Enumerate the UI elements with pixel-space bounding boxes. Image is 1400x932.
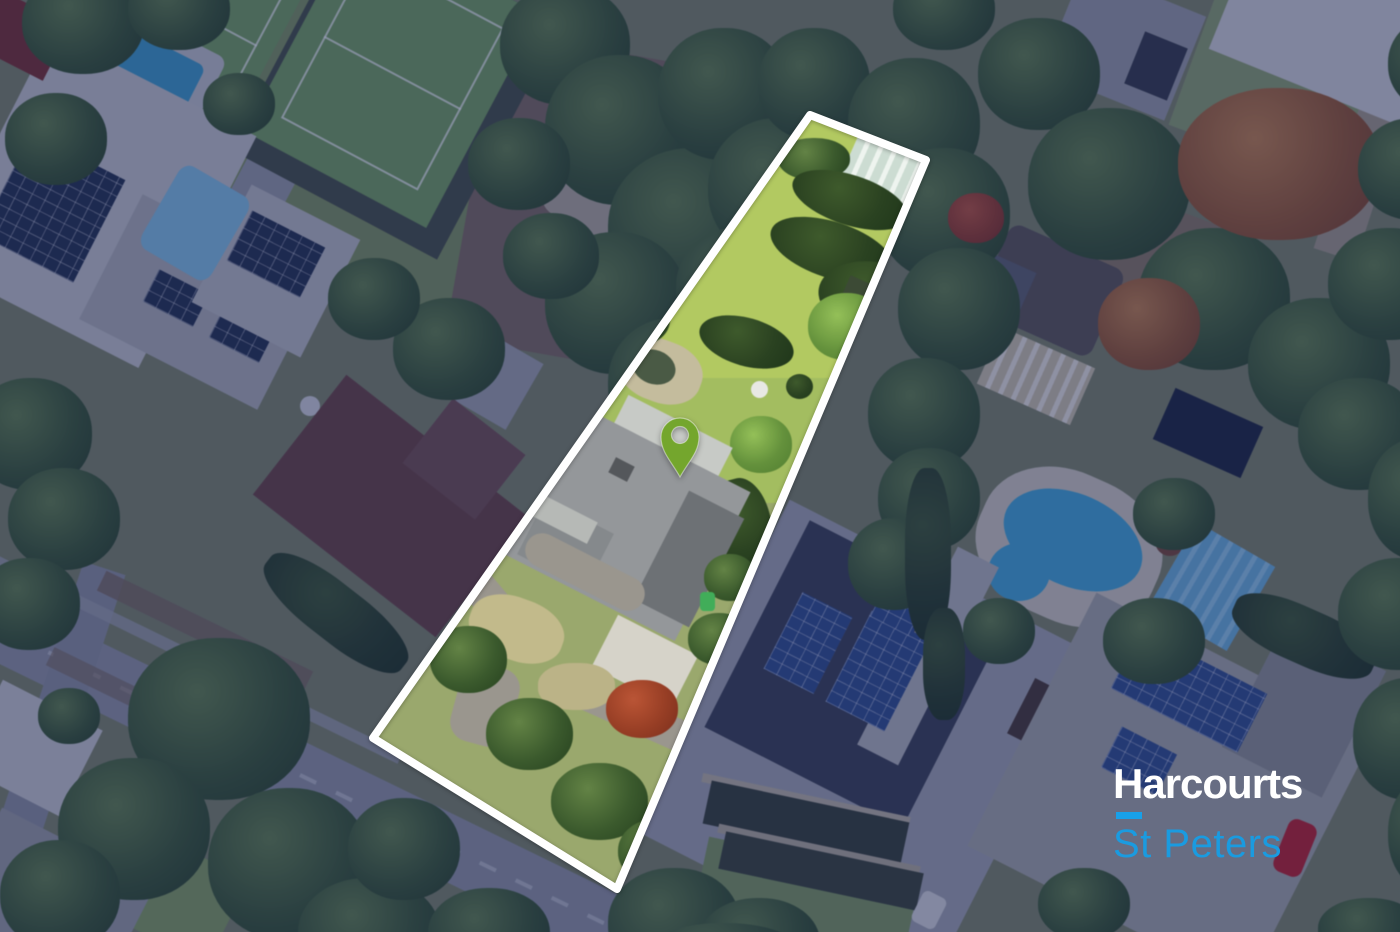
agency-logo: Harcourts St Peters (1113, 763, 1302, 864)
property-marketing-image: Harcourts St Peters (0, 0, 1400, 932)
agency-name: Harcourts (1113, 763, 1302, 805)
agency-office: St Peters (1113, 824, 1302, 864)
location-pin-icon (661, 418, 699, 477)
logo-underline (1116, 812, 1142, 819)
